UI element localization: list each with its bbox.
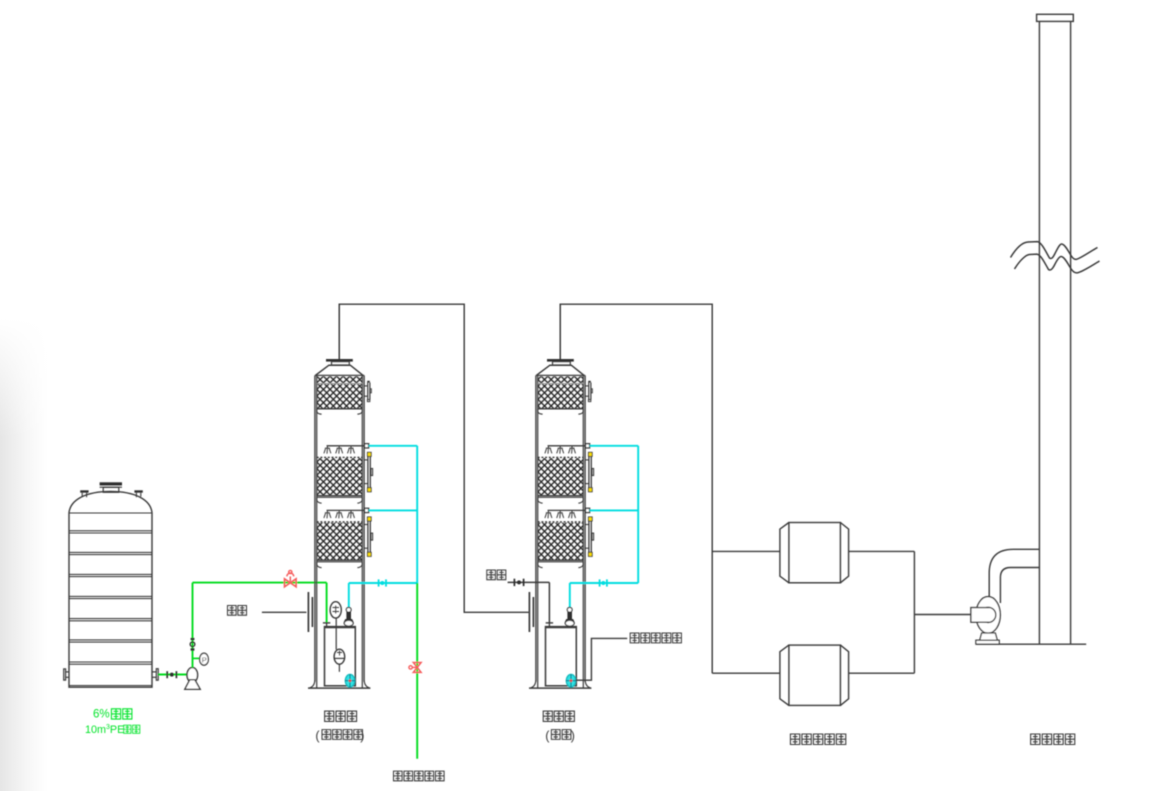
- svg-text:): ): [571, 729, 575, 743]
- svg-text:P: P: [202, 656, 207, 665]
- svg-text:6%: 6%: [93, 709, 110, 721]
- svg-text:): ): [360, 729, 364, 743]
- svg-text:10m3PE: 10m3PE: [85, 724, 124, 736]
